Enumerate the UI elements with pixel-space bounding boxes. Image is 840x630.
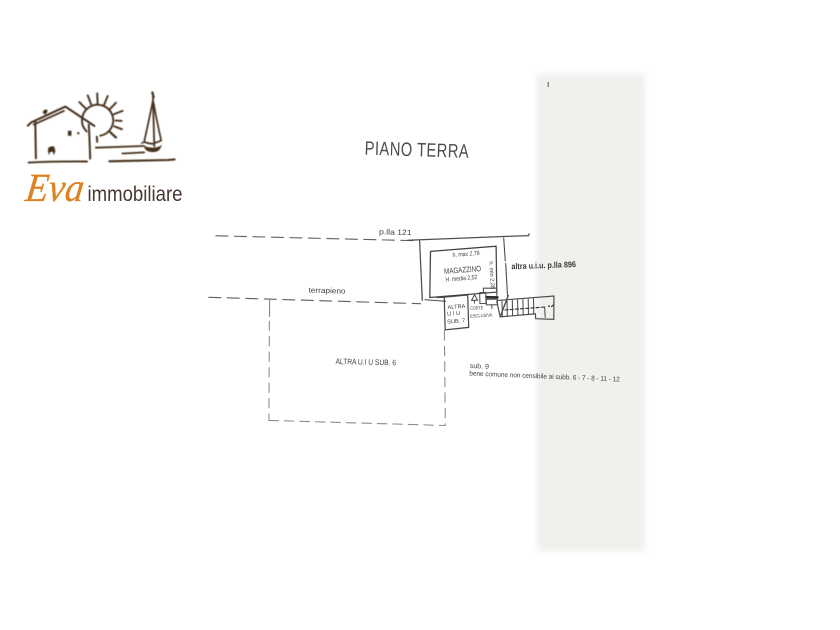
svg-text:PIANO TERRA: PIANO TERRA	[364, 138, 469, 163]
svg-text:ALTRA U.I U SUB. 6: ALTRA U.I U SUB. 6	[335, 357, 396, 367]
svg-text:immobiliare: immobiliare	[88, 182, 183, 206]
svg-text:H. media 2,52: H. media 2,52	[445, 274, 478, 284]
svg-text:h. max 2,79: h. max 2,79	[452, 250, 480, 259]
svg-text:p.lla 121: p.lla 121	[379, 227, 412, 237]
svg-text:terrapieno: terrapieno	[308, 286, 345, 296]
svg-text:CORTE: CORTE	[470, 305, 483, 312]
svg-text:sub. 9: sub. 9	[470, 363, 489, 371]
svg-text:SUB. 7: SUB. 7	[447, 318, 465, 325]
svg-text:h. min 2,26: h. min 2,26	[487, 261, 495, 289]
svg-text:ESCLUSIVA: ESCLUSIVA	[470, 313, 493, 320]
svg-text:Eva: Eva	[22, 165, 86, 210]
svg-text:U I U: U I U	[447, 311, 460, 318]
